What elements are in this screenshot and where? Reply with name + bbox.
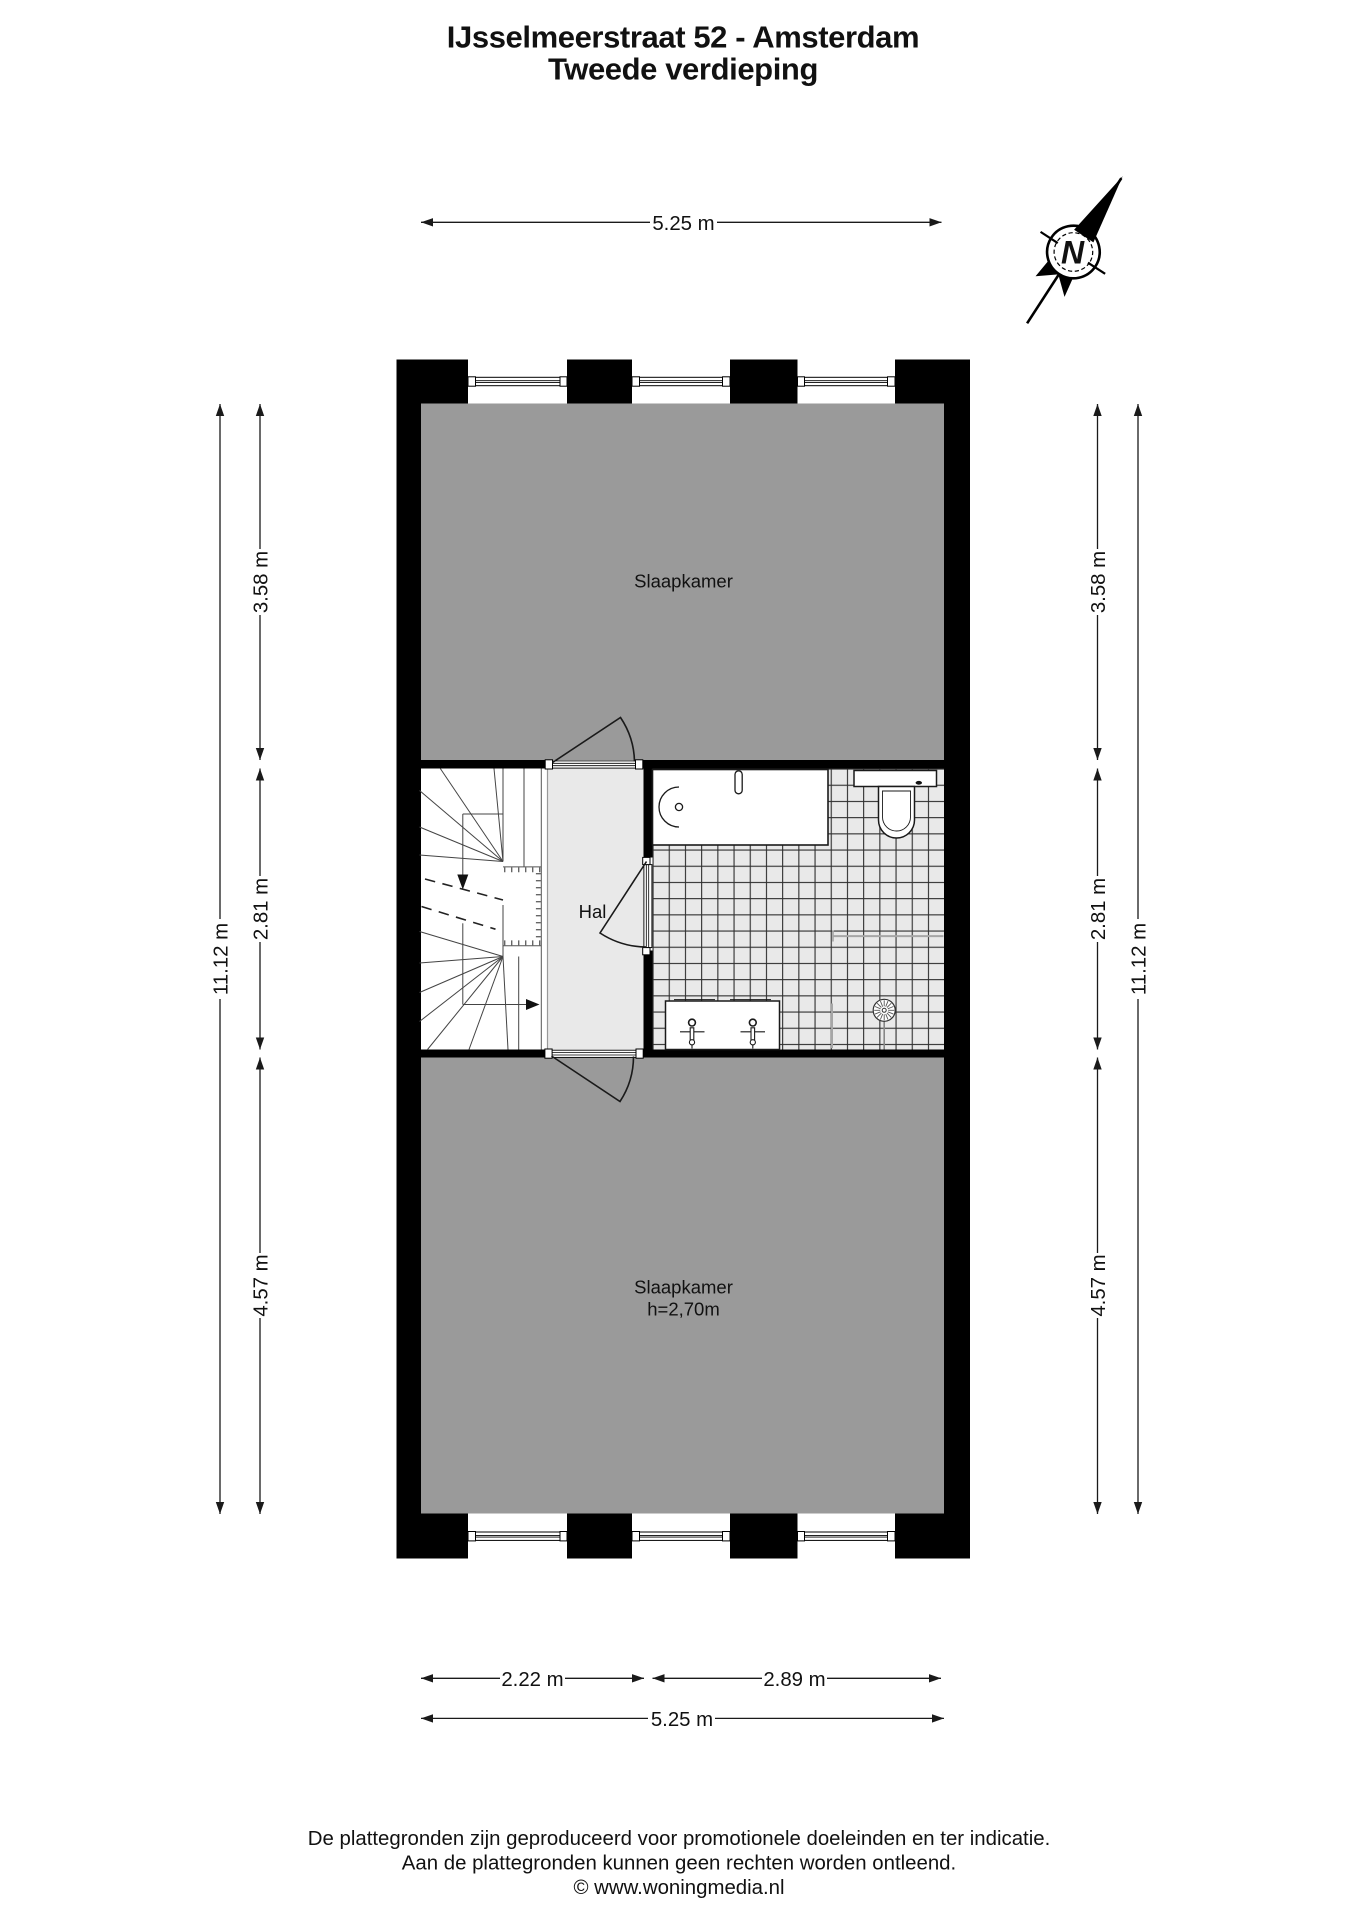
svg-text:2.81 m: 2.81 m [1088, 878, 1110, 940]
svg-text:Slaapkamer: Slaapkamer [634, 571, 733, 592]
svg-text:N: N [1061, 235, 1085, 271]
svg-text:IJsselmeerstraat 52 - Amsterda: IJsselmeerstraat 52 - Amsterdam [447, 20, 919, 55]
svg-text:2.22 m: 2.22 m [501, 1669, 563, 1691]
svg-text:2.81 m: 2.81 m [251, 878, 273, 940]
svg-text:De plattegronden zijn geproduc: De plattegronden zijn geproduceerd voor … [308, 1828, 1051, 1850]
svg-text:4.57 m: 4.57 m [1088, 1254, 1110, 1316]
svg-text:h=2,70m: h=2,70m [647, 1299, 720, 1320]
svg-text:11.12 m: 11.12 m [1129, 923, 1151, 995]
svg-text:5.25 m: 5.25 m [651, 1709, 713, 1731]
svg-text:2.89 m: 2.89 m [763, 1669, 825, 1691]
svg-text:Hal: Hal [579, 901, 607, 922]
svg-text:Aan de plattegronden kunnen ge: Aan de plattegronden kunnen geen rechten… [402, 1853, 956, 1875]
svg-text:4.57 m: 4.57 m [251, 1254, 273, 1316]
svg-text:© www.woningmedia.nl: © www.woningmedia.nl [573, 1877, 784, 1899]
svg-text:Slaapkamer: Slaapkamer [634, 1277, 733, 1298]
svg-text:5.25 m: 5.25 m [652, 213, 714, 235]
svg-text:3.58 m: 3.58 m [1088, 551, 1110, 613]
svg-text:11.12 m: 11.12 m [211, 923, 233, 995]
svg-text:Tweede verdieping: Tweede verdieping [548, 52, 818, 87]
svg-text:3.58 m: 3.58 m [251, 551, 273, 613]
